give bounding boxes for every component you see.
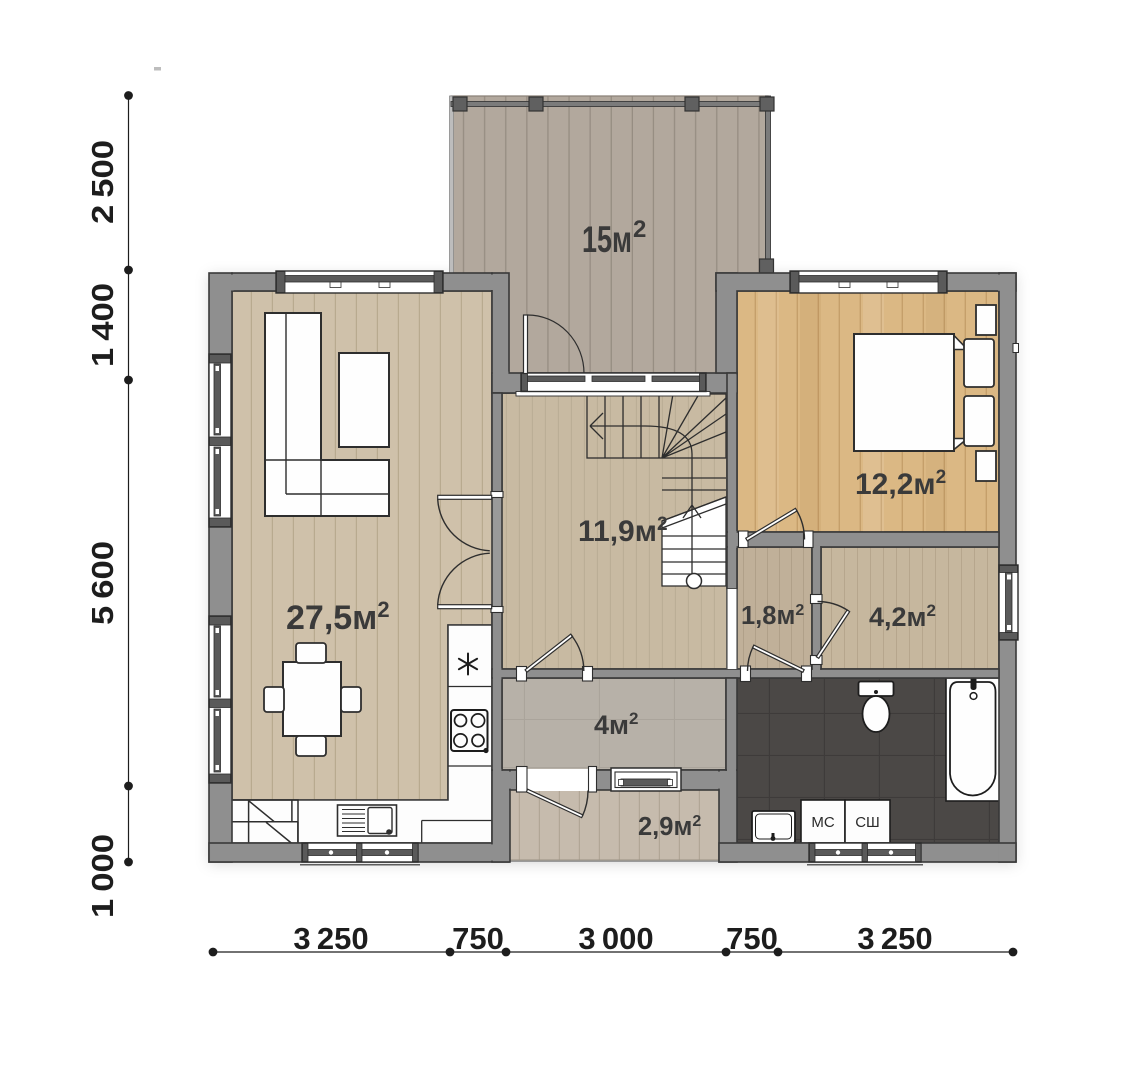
svg-text:МС: МС xyxy=(811,814,834,831)
svg-text:750: 750 xyxy=(726,921,778,956)
svg-text:2,9м2: 2,9м2 xyxy=(638,813,701,841)
svg-text:СШ: СШ xyxy=(855,814,880,831)
svg-text:3 250: 3 250 xyxy=(857,921,932,956)
svg-text:5 600: 5 600 xyxy=(85,541,120,625)
svg-text:15м: 15м xyxy=(582,219,632,260)
svg-text:27,5м2: 27,5м2 xyxy=(286,597,390,637)
svg-text:1 400: 1 400 xyxy=(85,283,120,367)
svg-text:2: 2 xyxy=(633,216,646,243)
svg-text:12,2м2: 12,2м2 xyxy=(855,467,946,501)
svg-text:4,2м2: 4,2м2 xyxy=(869,601,936,632)
svg-text:750: 750 xyxy=(452,921,504,956)
svg-text:1,8м2: 1,8м2 xyxy=(741,602,804,630)
svg-text:2 500: 2 500 xyxy=(85,140,120,224)
svg-text:3 000: 3 000 xyxy=(578,921,653,956)
svg-text:11,9м2: 11,9м2 xyxy=(578,514,668,548)
svg-text:1 000: 1 000 xyxy=(85,834,120,918)
svg-text:3 250: 3 250 xyxy=(293,921,368,956)
